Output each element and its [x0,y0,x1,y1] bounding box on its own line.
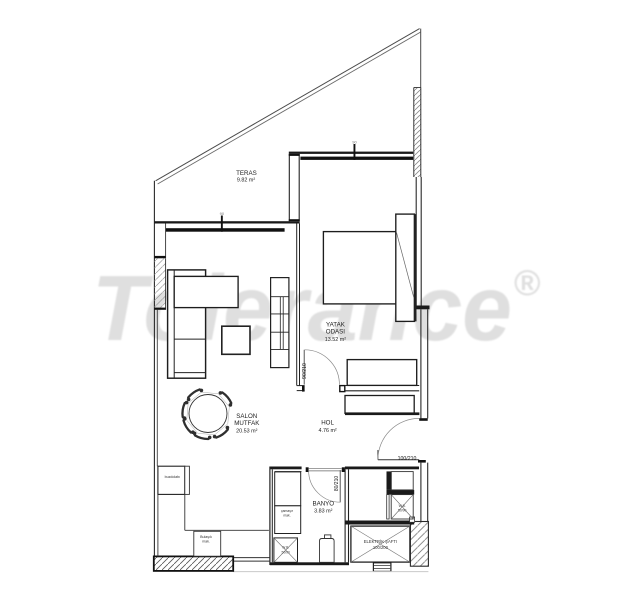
svg-text:20.53 m²: 20.53 m² [236,429,257,435]
svg-text:9.82 m²: 9.82 m² [237,178,255,184]
svg-text:W.B.: W.B. [282,546,289,550]
svg-text:100/200: 100/200 [373,545,389,550]
svg-text:ELEKTRİK ŞAFTI: ELEKTRİK ŞAFTI [364,539,397,544]
svg-text:çamaşır: çamaşır [281,509,294,513]
svg-text:100/210: 100/210 [398,456,417,462]
svg-text:Bulaşık: Bulaşık [200,535,212,539]
svg-text:90: 90 [220,211,225,216]
svg-text:ODASI: ODASI [326,329,346,336]
svg-text:50/90: 50/90 [281,550,290,554]
svg-text:W.B.: W.B. [399,504,406,508]
svg-text:buzdolabı: buzdolabı [165,475,181,479]
svg-text:MUTFAK: MUTFAK [234,420,260,427]
svg-text:TERAS: TERAS [236,170,257,177]
svg-text:SALON: SALON [236,413,257,420]
svg-text:4.76 m²: 4.76 m² [318,428,336,434]
svg-text:mak.: mak. [283,513,290,517]
svg-text:90: 90 [352,139,357,144]
svg-text:90/210: 90/210 [302,363,308,379]
svg-text:50/90: 50/90 [398,509,407,513]
svg-text:®: ® [514,262,541,303]
svg-text:80/210: 80/210 [334,476,340,492]
svg-text:HOL: HOL [321,420,334,427]
svg-text:3.83 m²: 3.83 m² [314,508,332,514]
svg-text:YATAK: YATAK [326,322,346,329]
svg-text:13.52 m²: 13.52 m² [325,337,346,343]
svg-text:BANYO: BANYO [312,501,334,508]
svg-text:mak.: mak. [202,540,210,544]
